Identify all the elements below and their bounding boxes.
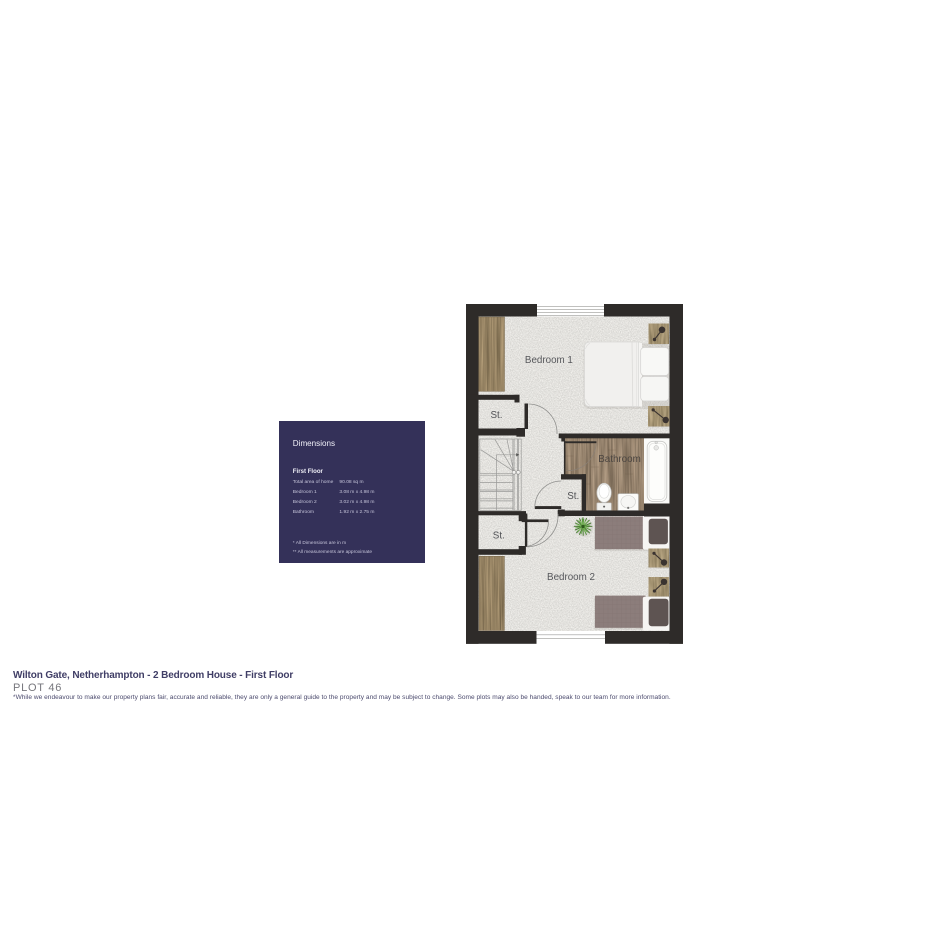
svg-text:St.: St. (567, 491, 579, 502)
svg-text:St.: St. (491, 410, 503, 421)
svg-text:St.: St. (493, 531, 505, 542)
svg-text:Bedroom 1: Bedroom 1 (525, 355, 573, 366)
svg-text:Bedroom 2: Bedroom 2 (547, 572, 595, 583)
svg-text:Bathroom: Bathroom (598, 454, 640, 465)
